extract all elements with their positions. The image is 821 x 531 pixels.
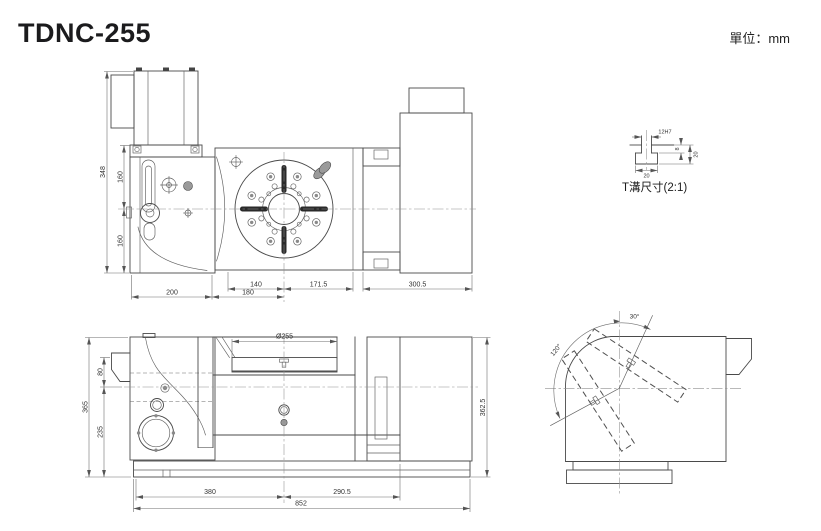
top-view: 348 160 160 200 180 140 171.5 300.5	[100, 68, 476, 303]
plug-screw	[184, 182, 193, 191]
support-housing-top	[353, 88, 472, 273]
dim-30deg: 30°	[630, 313, 640, 321]
support-housing-front	[355, 337, 472, 461]
tslot-detail-label: T溝尺寸(2:1)	[622, 180, 687, 194]
tslot-detail: 12H7 20 20 8 T溝尺寸(2:1)	[622, 130, 700, 195]
dim-8: 8	[675, 147, 681, 150]
motor-screw	[136, 68, 142, 72]
technical-drawing: TDNC-255 單位：mm	[0, 0, 821, 531]
dim-235: 235	[98, 426, 105, 438]
dim-160-lower: 160	[118, 235, 125, 247]
dim-171-5: 171.5	[310, 282, 328, 289]
dim-380: 380	[204, 489, 216, 496]
dim-140: 140	[250, 282, 262, 289]
dim-290-5: 290.5	[333, 489, 351, 496]
tslot-dimensions: 12H7 20 20 8	[632, 130, 700, 180]
motor-top	[111, 68, 202, 158]
dim-348: 348	[100, 166, 107, 178]
side-body	[565, 337, 726, 462]
page-title: TDNC-255	[18, 18, 151, 48]
tilt-housing-front	[112, 334, 216, 461]
motor-screw	[163, 68, 169, 72]
dim-300-5: 300.5	[409, 282, 427, 289]
dim-180: 180	[242, 290, 254, 297]
dim-20-depth: 20	[694, 151, 700, 157]
units-label: 單位：mm	[729, 31, 790, 46]
dim-200: 200	[166, 290, 178, 297]
dim-362-5: 362.5	[480, 399, 487, 417]
dim-160-upper: 160	[118, 171, 125, 183]
front-view: Ø255 365 80 235 362.5 380 290.5	[83, 333, 491, 512]
motor-cover-side	[726, 339, 752, 375]
cradle-front	[213, 375, 400, 435]
base-step-side	[573, 462, 668, 471]
drawing-page: TDNC-255 單位：mm	[0, 0, 821, 531]
table-front	[213, 337, 337, 372]
dim-12h7: 12H7	[658, 130, 671, 136]
bearing-cover	[137, 414, 175, 452]
tilt-arc	[554, 323, 651, 419]
side-view: 30° 120°	[545, 311, 752, 496]
motor-screw	[189, 68, 195, 72]
dim-365: 365	[83, 401, 90, 413]
dim-dia-255: Ø255	[276, 334, 293, 341]
base-front	[134, 461, 471, 477]
t-nut-glyph-30	[624, 358, 635, 370]
dim-120deg: 120°	[549, 342, 564, 358]
dim-80: 80	[98, 368, 105, 376]
dim-20-width: 20	[643, 174, 649, 180]
tilt-housing-top	[127, 157, 216, 273]
dim-852: 852	[295, 501, 307, 508]
